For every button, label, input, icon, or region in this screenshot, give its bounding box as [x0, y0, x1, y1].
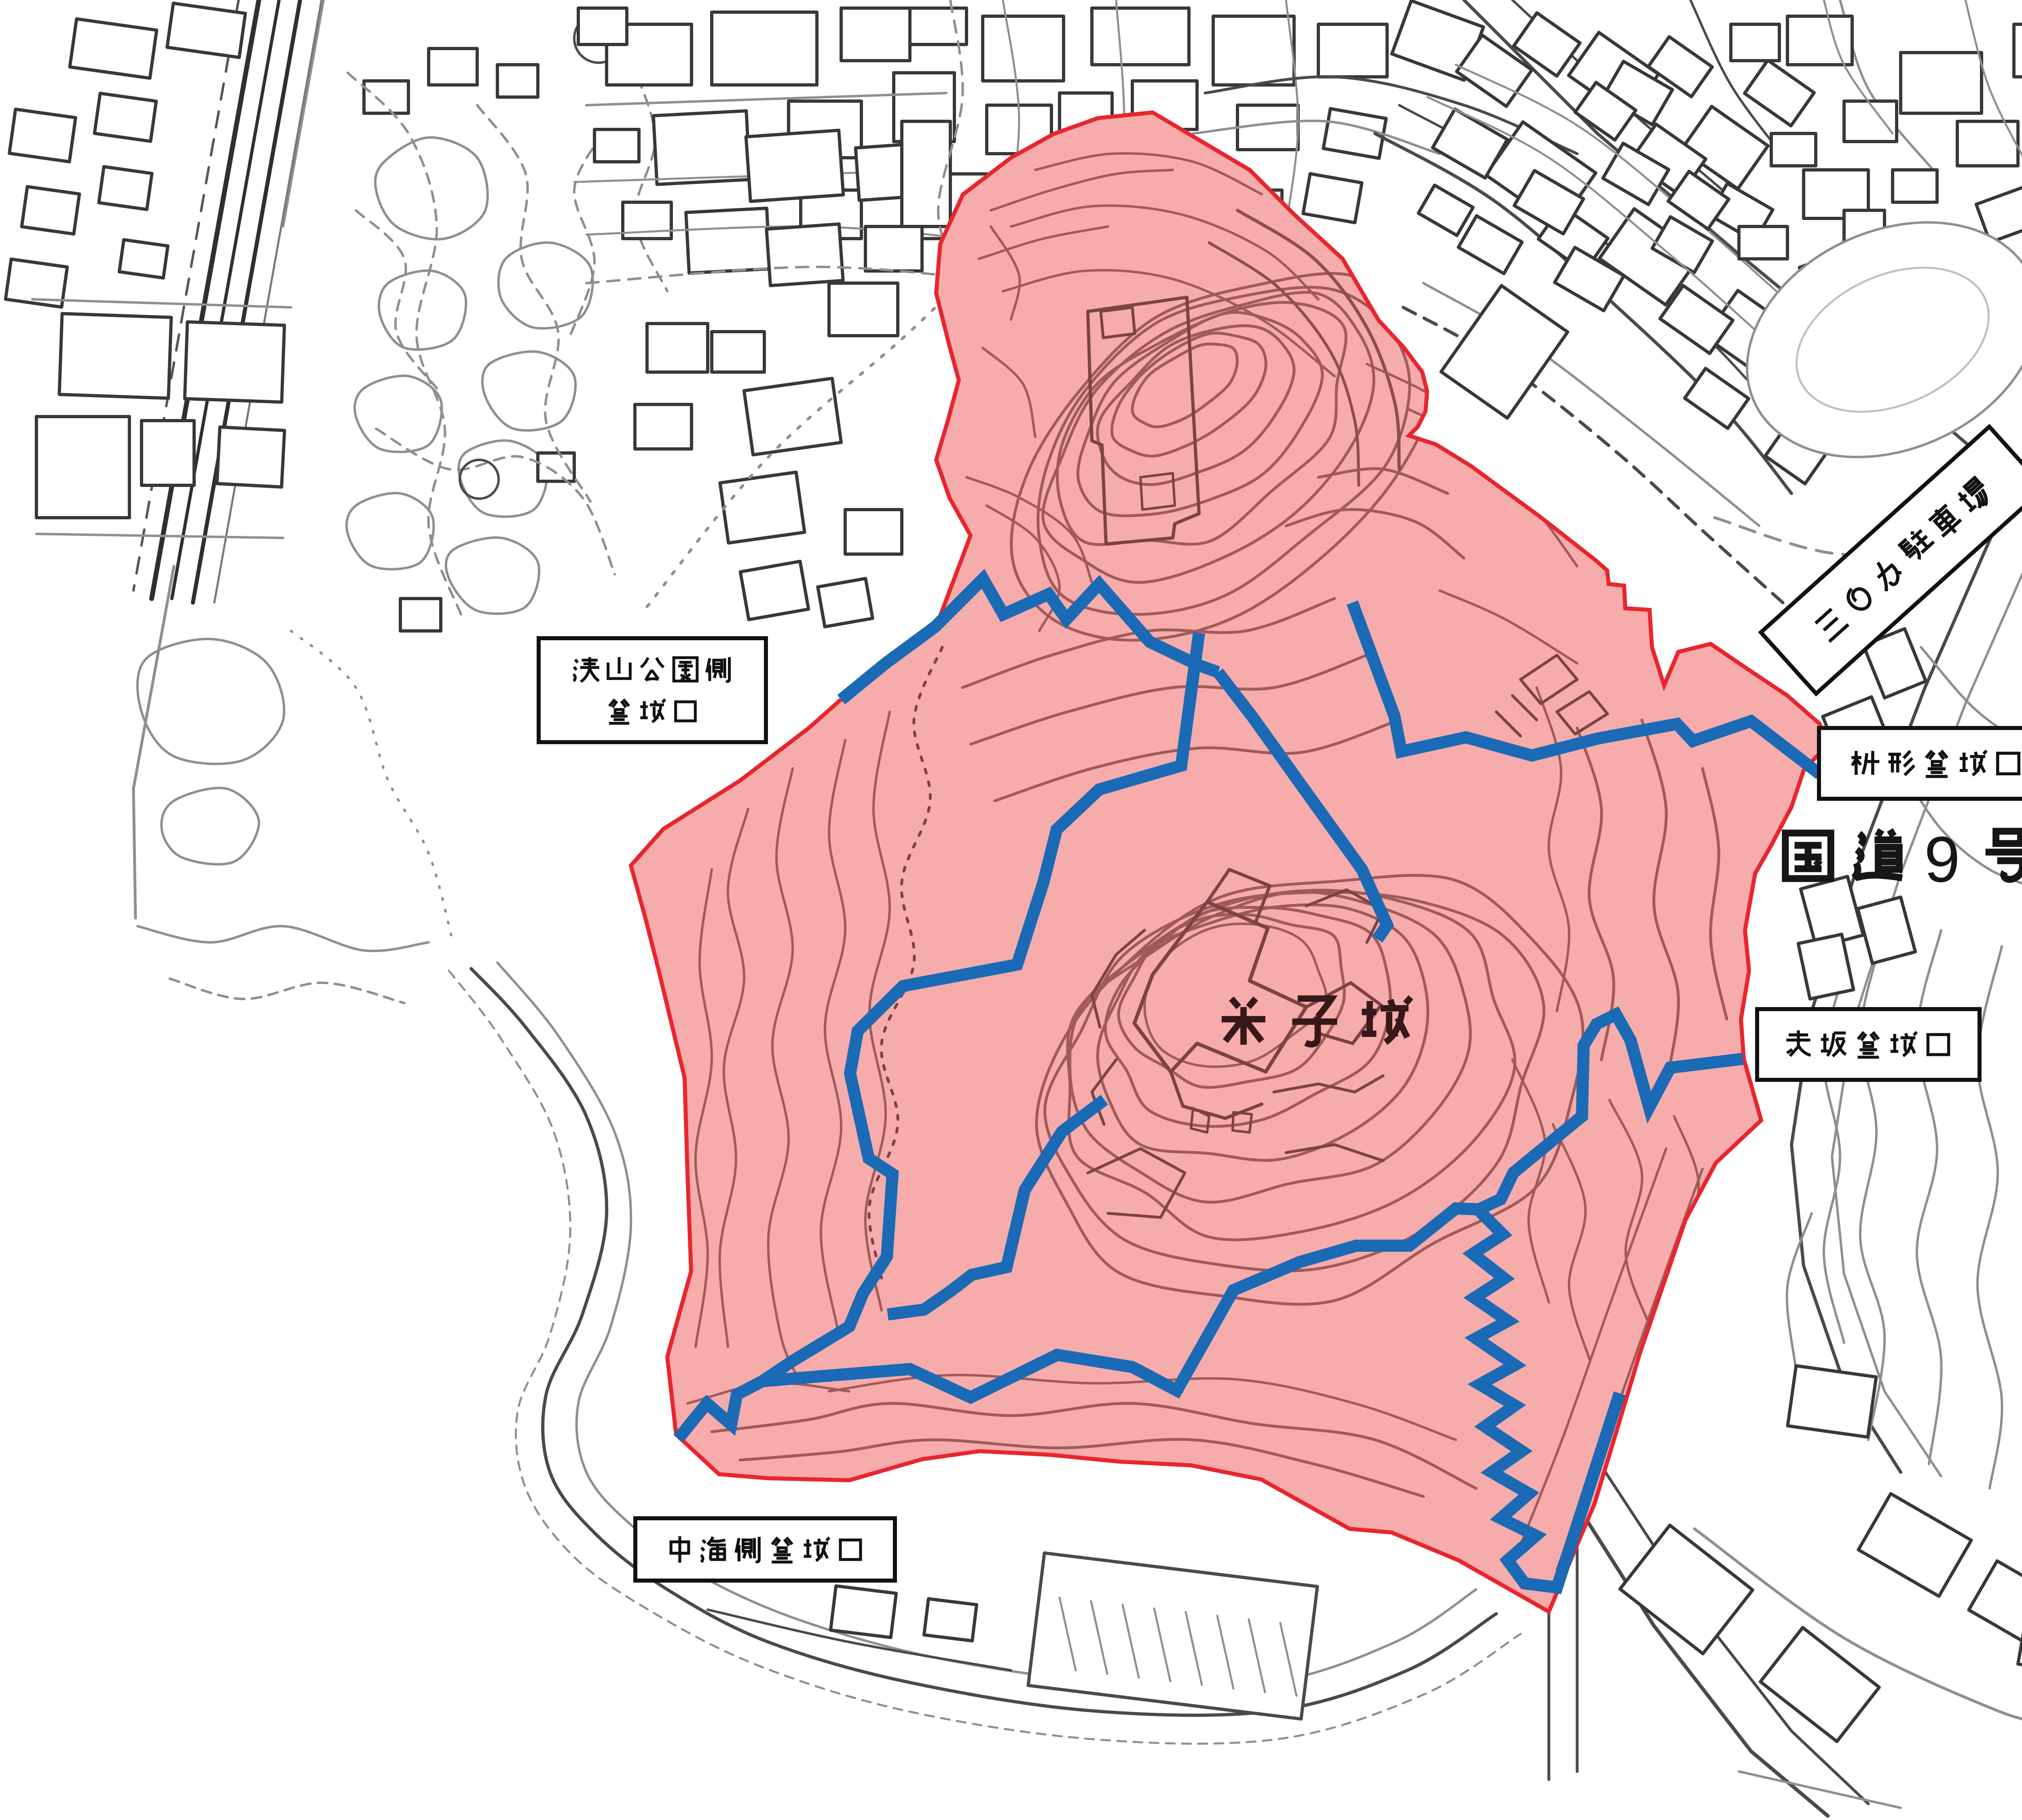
- svg-text:9: 9: [1924, 823, 1960, 895]
